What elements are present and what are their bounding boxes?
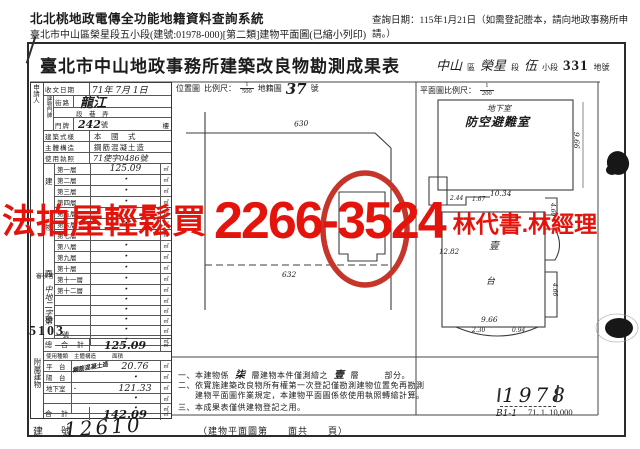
right-protrusion-3 [545, 272, 557, 317]
basement-outline [438, 100, 573, 190]
first-floor-bottom-arc [456, 327, 538, 336]
land-registry-scan-page: 北北桃地政電傳全功能地籍資料查詢系統 查詢日期：115年1月21日（如需登記謄本… [0, 0, 640, 449]
ink-blob-bottom [605, 318, 633, 338]
ad-phone-number: 2266-3524 [214, 198, 445, 244]
map-top-line [186, 133, 391, 148]
ad-text-right: 林代書.林經理 [453, 204, 597, 244]
ink-blob-top [606, 165, 618, 175]
advertisement-overlay: 法拍屋輕鬆買 2266-3524 林代書.林經理 [2, 196, 597, 244]
ad-text-left: 法拍屋輕鬆買 [2, 200, 206, 244]
